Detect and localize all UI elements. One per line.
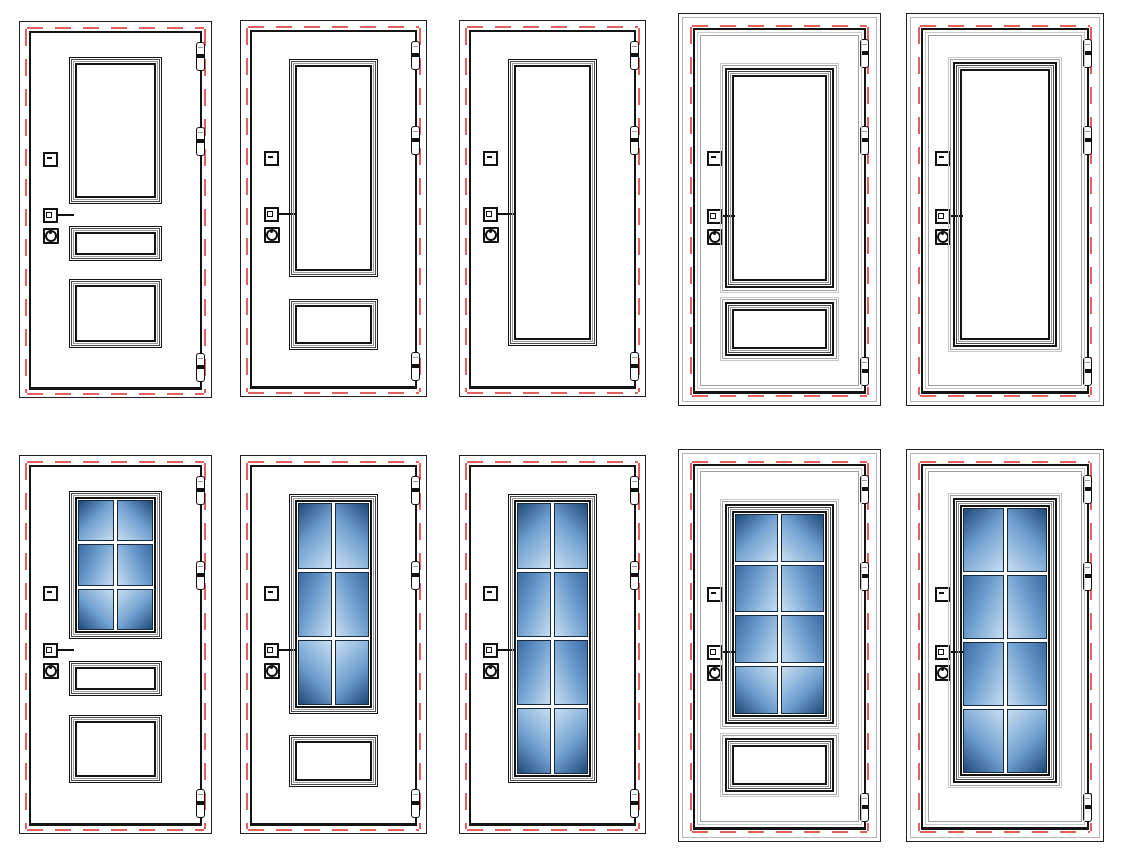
panels-column (69, 33, 162, 387)
glass-pane (335, 640, 369, 705)
panels-column (508, 32, 598, 386)
door-leaf (250, 465, 417, 826)
hinge-icon (1083, 357, 1092, 386)
glass-pane (735, 666, 778, 714)
glass-grid (735, 514, 824, 714)
door-leaf (29, 31, 202, 390)
glass-pane (1007, 508, 1048, 572)
glass-pane (735, 514, 778, 562)
panels-column (720, 482, 839, 811)
glass-pane (517, 572, 551, 637)
door-leaf (921, 464, 1089, 830)
door-leaf (693, 28, 866, 394)
glass-pane (554, 572, 588, 637)
hinge-icon (630, 561, 639, 590)
glass-pane (781, 514, 824, 562)
door-glass-2x3-one-blank-panel[interactable] (240, 455, 427, 834)
latch-icon (264, 586, 279, 601)
hinge-icon (1083, 126, 1092, 155)
blank-panel (720, 63, 839, 293)
lever-handle-icon (483, 643, 498, 658)
door-two-blank-panels[interactable] (240, 20, 427, 397)
hinge-icon (411, 561, 420, 590)
panel-blank-interior (78, 288, 153, 338)
hinge-icon (411, 789, 420, 818)
glass-panel (508, 494, 598, 782)
blank-panel (720, 733, 839, 797)
panel-blank-interior (298, 744, 370, 777)
blank-panel (508, 59, 598, 346)
blank-panel (69, 226, 162, 261)
hinge-icon (411, 476, 420, 505)
glass-pane (781, 565, 824, 613)
hinge-icon (630, 352, 639, 381)
glass-pane (298, 572, 332, 637)
latch-icon (43, 152, 58, 167)
panel-blank-interior (78, 235, 153, 252)
blank-panel (69, 715, 162, 784)
blank-panel (69, 279, 162, 347)
door-leaf (921, 28, 1089, 394)
hinge-icon (860, 562, 869, 591)
glass-pane (335, 572, 369, 637)
panel-blank-interior (735, 748, 824, 782)
panel-blank-interior (78, 724, 153, 775)
glass-pane (963, 575, 1004, 639)
hinge-icon (196, 42, 205, 71)
glass-pane (117, 500, 153, 541)
glass-pane (554, 640, 588, 705)
glass-pane (517, 640, 551, 705)
door-leaf (469, 465, 636, 826)
glass-pane (517, 503, 551, 568)
hinge-icon (411, 352, 420, 381)
glass-pane (735, 615, 778, 663)
panels-column (289, 467, 379, 823)
door-molded-single-blank-panel[interactable] (906, 13, 1104, 406)
hinge-icon (860, 126, 869, 155)
leaf-panel-area (711, 46, 848, 375)
panels-column (508, 467, 598, 823)
glass-pane (554, 503, 588, 568)
panels-column (948, 482, 1063, 811)
lever-handle-icon (483, 207, 498, 222)
hinge-icon (196, 561, 205, 590)
door-molded-glass-2x4-one-blank-panel[interactable] (678, 449, 881, 842)
glass-pane (298, 503, 332, 568)
panel-blank-interior (298, 68, 370, 268)
glass-pane (554, 708, 588, 773)
hinge-icon (196, 353, 205, 382)
glass-pane (963, 642, 1004, 706)
leaf-panel-area (711, 482, 848, 811)
panel-blank-interior (78, 670, 153, 687)
glass-pane (735, 565, 778, 613)
door-full-glass-2x4[interactable] (459, 455, 646, 834)
door-leaf (29, 465, 202, 826)
door-molded-two-blank-panels[interactable] (678, 13, 881, 406)
panels-column (69, 467, 162, 823)
panels-column (948, 46, 1063, 375)
glass-panel (948, 493, 1063, 788)
glass-pane (1007, 709, 1048, 773)
glass-panel (69, 491, 162, 639)
leaf-panel-area (939, 482, 1071, 811)
hinge-icon (860, 793, 869, 822)
hinge-icon (860, 357, 869, 386)
blank-panel (289, 59, 379, 277)
blank-panel (289, 299, 379, 350)
blank-panel (289, 735, 379, 786)
hinge-icon (630, 41, 639, 70)
latch-icon (264, 151, 279, 166)
panel-blank-interior (78, 66, 153, 195)
door-molded-full-glass-2x4[interactable] (906, 449, 1104, 842)
glass-pane (1007, 642, 1048, 706)
lever-handle-icon (264, 207, 279, 222)
glass-pane (1007, 575, 1048, 639)
glass-pane (963, 508, 1004, 572)
hinge-icon (630, 476, 639, 505)
blank-panel (69, 57, 162, 204)
glass-grid (963, 508, 1048, 773)
glass-grid (298, 503, 370, 704)
glass-pane (78, 500, 114, 541)
glass-pane (781, 615, 824, 663)
hinge-icon (860, 475, 869, 504)
panel-blank-interior (963, 72, 1048, 337)
blank-panel (720, 297, 839, 361)
panel-blank-interior (298, 308, 370, 341)
blank-panel (69, 661, 162, 696)
hinge-icon (860, 39, 869, 68)
glass-pane (781, 666, 824, 714)
cylinder-lock-icon (483, 227, 499, 243)
glass-grid (78, 500, 153, 630)
panel-blank-interior (735, 78, 824, 278)
panels-column (289, 32, 379, 386)
panel-blank-interior (735, 312, 824, 346)
hinge-icon (1083, 562, 1092, 591)
hinge-icon (630, 126, 639, 155)
lever-handle-icon (43, 643, 58, 658)
glass-pane (78, 589, 114, 630)
hinge-icon (411, 126, 420, 155)
latch-icon (483, 586, 498, 601)
hinge-icon (1083, 475, 1092, 504)
cylinder-lock-icon (43, 228, 59, 244)
latch-icon (483, 151, 498, 166)
glass-panel (289, 494, 379, 713)
cylinder-lock-icon (264, 227, 280, 243)
glass-pane (963, 709, 1004, 773)
leaf-panel-area (939, 46, 1071, 375)
hinge-icon (196, 789, 205, 818)
cylinder-lock-icon (483, 663, 499, 679)
hinge-icon (630, 789, 639, 818)
lever-handle-icon (264, 643, 279, 658)
door-three-blank-panels[interactable] (19, 21, 212, 398)
glass-pane (517, 708, 551, 773)
blank-panel (948, 57, 1063, 352)
hinge-icon (411, 41, 420, 70)
door-leaf (469, 30, 636, 389)
lever-handle-icon (43, 208, 58, 223)
hinge-icon (1083, 39, 1092, 68)
glass-pane (78, 544, 114, 585)
door-glass-2x3-two-blank-panels[interactable] (19, 455, 212, 834)
glass-pane (117, 544, 153, 585)
panel-blank-interior (517, 68, 589, 337)
glass-grid (517, 503, 589, 773)
panels-column (720, 46, 839, 375)
door-leaf (693, 464, 866, 830)
hinge-icon (196, 476, 205, 505)
hinge-icon (196, 127, 205, 156)
door-single-tall-blank-panel[interactable] (459, 20, 646, 397)
door-designs-canvas (0, 0, 1124, 854)
hinge-icon (1083, 793, 1092, 822)
door-leaf (250, 30, 417, 389)
glass-panel (720, 499, 839, 729)
latch-icon (43, 586, 58, 601)
cylinder-lock-icon (43, 663, 59, 679)
glass-pane (298, 640, 332, 705)
glass-pane (117, 589, 153, 630)
glass-pane (335, 503, 369, 568)
cylinder-lock-icon (264, 663, 280, 679)
